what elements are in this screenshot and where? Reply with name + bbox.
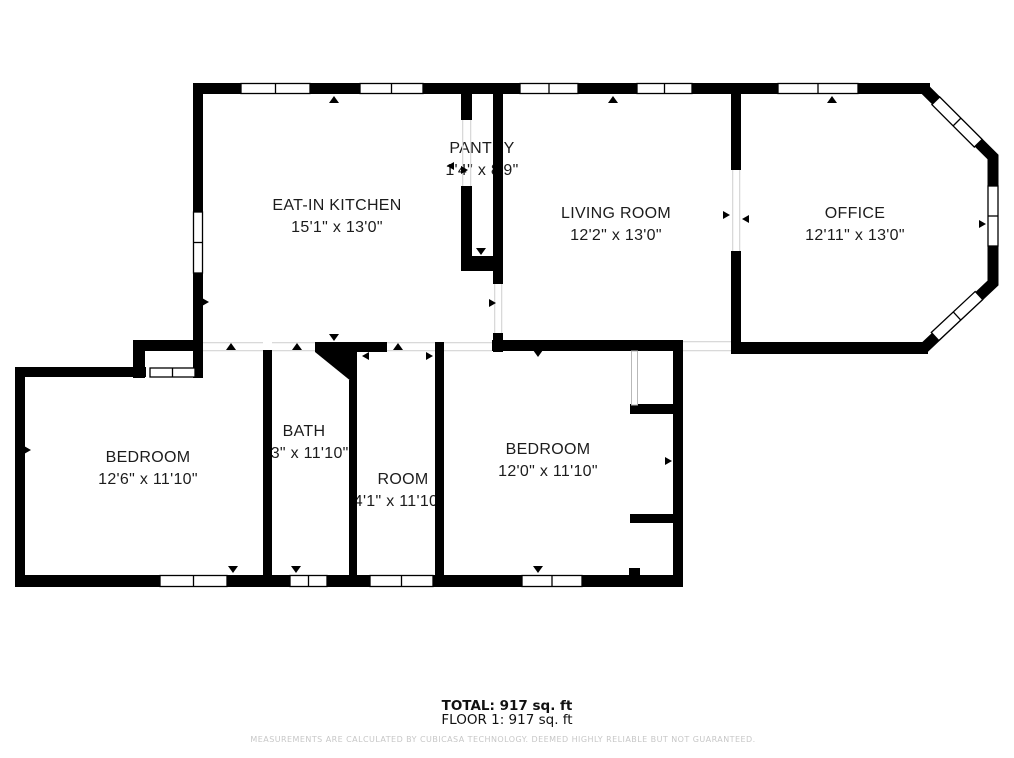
window xyxy=(931,292,982,341)
room-label-pantry: PANTRY 1'4" x 8'9" xyxy=(445,140,518,179)
window xyxy=(637,84,692,94)
wall-living-office-divider-lower xyxy=(731,251,741,352)
wall-door-nub xyxy=(629,568,640,576)
room-name: BEDROOM xyxy=(106,449,191,466)
room-name: BATH xyxy=(283,423,326,440)
room-dims: 12'0" x 11'10" xyxy=(498,463,598,480)
room-dims: '3" x 11'10" xyxy=(267,445,348,462)
wall-bedroom-left-top xyxy=(15,367,146,377)
room-name: LIVING ROOM xyxy=(561,205,671,222)
wall-bedroom-left-side xyxy=(15,367,25,587)
room-label-eat-in-kitchen: EAT-IN KITCHEN 15'1" x 13'0" xyxy=(272,197,401,236)
wall-bedroom-right-side xyxy=(673,340,683,587)
footer: TOTAL: 917 sq. ft FLOOR 1: 917 sq. ft ME… xyxy=(250,698,755,744)
room-name: OFFICE xyxy=(825,205,885,222)
room-label-living-room: LIVING ROOM 12'2" x 13'0" xyxy=(561,205,671,244)
room-name: ROOM xyxy=(378,471,429,488)
room-label-bedroom-left: BEDROOM 12'6" x 11'10" xyxy=(98,449,198,488)
room-dims: 1'4" x 8'9" xyxy=(445,162,518,179)
wall-closet-stub-lower xyxy=(630,514,675,523)
disclaimer-text: MEASUREMENTS ARE CALCULATED BY CUBICASA … xyxy=(250,735,755,744)
window xyxy=(778,84,858,94)
room-name: BEDROOM xyxy=(506,441,591,458)
door-leaf xyxy=(632,351,638,405)
windows xyxy=(150,84,998,587)
room-dims: 4'1" x 11'10 xyxy=(354,493,438,510)
window xyxy=(360,84,423,94)
wall-bedroom-right-top xyxy=(492,340,682,351)
window xyxy=(290,576,327,587)
window xyxy=(370,576,433,587)
room-label-bath: BATH '3" x 11'10" xyxy=(267,423,348,462)
room-name: EAT-IN KITCHEN xyxy=(272,197,401,214)
walls xyxy=(15,83,993,587)
room-label-room: ROOM 4'1" x 11'10 xyxy=(354,471,438,510)
window xyxy=(194,212,203,273)
room-dims: 12'2" x 13'0" xyxy=(570,227,662,244)
wall-living-office-divider-upper xyxy=(731,94,741,170)
room-label-office: OFFICE 12'11" x 13'0" xyxy=(805,205,905,244)
wall-pantry-left-upper xyxy=(461,94,472,120)
wall-office-bottom xyxy=(731,342,928,354)
room-dims: 12'11" x 13'0" xyxy=(805,227,905,244)
window xyxy=(241,84,310,94)
room-dims: 15'1" x 13'0" xyxy=(291,219,383,236)
floorplan-page: EAT-IN KITCHEN 15'1" x 13'0" PANTRY 1'4"… xyxy=(0,0,1014,758)
window xyxy=(522,576,582,587)
window xyxy=(160,576,227,587)
window xyxy=(932,97,982,147)
wall-room-left xyxy=(349,380,357,576)
wall-kitchen-living-divider xyxy=(493,94,503,284)
floor-area-label: FLOOR 1: 917 sq. ft xyxy=(441,712,572,728)
window xyxy=(520,84,578,94)
wall-hall-top xyxy=(315,342,387,352)
room-dims: 12'6" x 11'10" xyxy=(98,471,198,488)
wall-pantry-left-lower xyxy=(461,186,472,264)
room-name: PANTRY xyxy=(449,140,514,157)
wall-room-right xyxy=(435,342,444,576)
room-label-bedroom-right: BEDROOM 12'0" x 11'10" xyxy=(498,441,598,480)
window xyxy=(150,368,195,377)
floorplan-svg: EAT-IN KITCHEN 15'1" x 13'0" PANTRY 1'4"… xyxy=(0,0,1014,758)
wall-bath-left xyxy=(263,350,272,576)
window xyxy=(988,186,998,246)
